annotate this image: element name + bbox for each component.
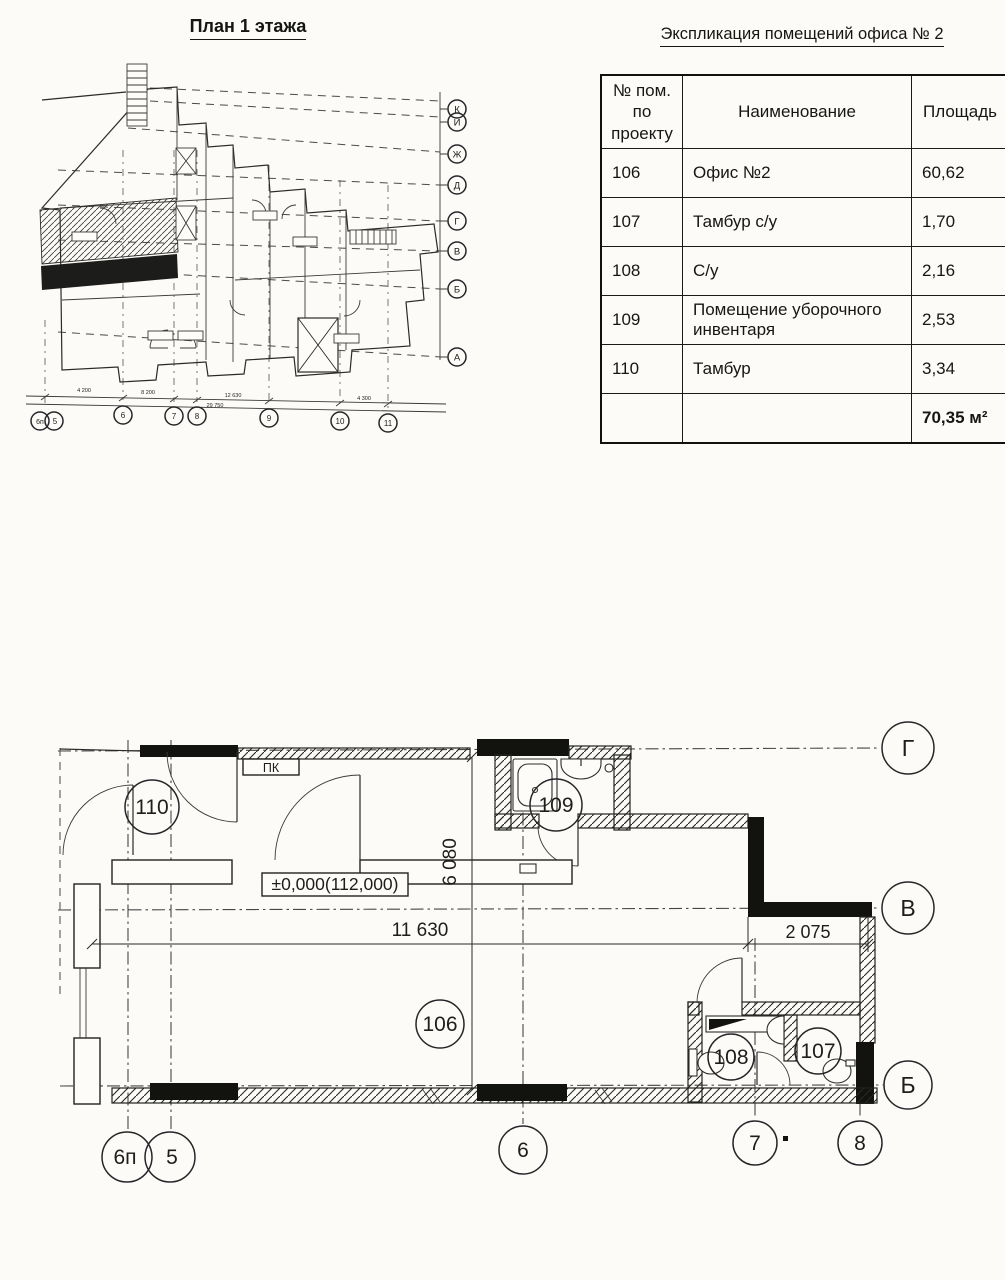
table-row: 110 Тамбур 3,34 bbox=[601, 344, 1005, 393]
room-area: 2,53 bbox=[912, 295, 1005, 344]
room-area: 3,34 bbox=[912, 344, 1005, 393]
total-area: 70,35 м² bbox=[912, 393, 1005, 443]
room-name: Помещение уборочного инвентаря bbox=[683, 295, 912, 344]
room-name: Офис №2 bbox=[683, 148, 912, 197]
rooms-107-108 bbox=[688, 958, 860, 1102]
walls-top bbox=[60, 739, 631, 759]
explication-table: № пом. по проекту Наименование Площадь 1… bbox=[600, 74, 1005, 444]
walls-bottom bbox=[112, 1083, 877, 1104]
axis-label: Г bbox=[454, 217, 459, 228]
room-label: 110 bbox=[135, 796, 168, 819]
empty-cell bbox=[601, 393, 683, 443]
dim-label: 12 630 bbox=[225, 393, 242, 399]
col-header-area: Площадь bbox=[912, 75, 1005, 148]
room-name: Тамбур с/у bbox=[683, 197, 912, 246]
room-area: 60,62 bbox=[912, 148, 1005, 197]
axis-label: В bbox=[454, 247, 460, 258]
svg-text:±0,000(112,000): ±0,000(112,000) bbox=[271, 874, 398, 894]
axis-letter-circles: Г В Б bbox=[882, 722, 934, 1109]
axis-label: Б bbox=[454, 285, 460, 296]
room-109 bbox=[495, 755, 748, 866]
axis-label: 5 bbox=[166, 1146, 178, 1169]
explication-title: Экспликация помещений офиса № 2 bbox=[607, 25, 997, 47]
axis-label: 10 bbox=[336, 417, 345, 426]
dim-label: 4 200 bbox=[77, 388, 91, 394]
table-row: 108 С/у 2,16 bbox=[601, 246, 1005, 295]
dim-width-right: 2 075 bbox=[785, 922, 830, 942]
room-label: 107 bbox=[800, 1040, 835, 1063]
elevation-mark: ±0,000(112,000) bbox=[262, 873, 408, 896]
left-wall-piers bbox=[74, 884, 100, 1104]
stair-run bbox=[350, 230, 396, 244]
door-swing-110-a bbox=[167, 752, 237, 822]
dim-label: 8 200 bbox=[141, 390, 155, 396]
axis-label: 11 bbox=[384, 419, 393, 428]
table-total-row: 70,35 м² bbox=[601, 393, 1005, 443]
axis-label: В bbox=[900, 895, 915, 921]
axis-label: 6 bbox=[517, 1139, 529, 1162]
small-floor-plan: К И Ж Д Г В Б А 4 200 8 200 12 630 bbox=[0, 55, 500, 445]
axis-label: 8 bbox=[195, 412, 200, 421]
large-floor-plan: ПК bbox=[0, 700, 1005, 1200]
room-label: 109 bbox=[538, 794, 573, 817]
col-header-number: № пом. по проекту bbox=[601, 75, 683, 148]
sink-109 bbox=[561, 759, 613, 779]
room-number: 108 bbox=[601, 246, 683, 295]
tick-mark bbox=[783, 1136, 788, 1141]
gate-opening bbox=[298, 318, 338, 372]
room-name: С/у bbox=[683, 246, 912, 295]
small-plan-title: План 1 этажа bbox=[148, 16, 348, 40]
axis-label: 9 bbox=[267, 414, 272, 423]
axis-label: 6п bbox=[113, 1146, 136, 1169]
axis-label: 8 bbox=[854, 1132, 866, 1155]
col-header-name: Наименование bbox=[683, 75, 912, 148]
axis-label: 7 bbox=[172, 412, 177, 421]
empty-cell bbox=[683, 393, 912, 443]
bottom-axis-row: 4 200 8 200 12 630 4 300 29 750 6п 5 6 7… bbox=[26, 388, 446, 432]
axis-label: Г bbox=[902, 735, 915, 761]
axis-label: 7 bbox=[749, 1132, 761, 1155]
wall-switch-mark bbox=[520, 864, 536, 873]
hatched-zone bbox=[40, 198, 178, 264]
room-label: 106 bbox=[422, 1013, 457, 1036]
stair-shaft bbox=[127, 64, 147, 126]
dim-height-main: 6 080 bbox=[440, 838, 461, 886]
room-label: 108 bbox=[713, 1046, 748, 1069]
axis-label: 6п bbox=[36, 419, 44, 426]
door-swing-110-b bbox=[275, 775, 360, 860]
axis-grid bbox=[58, 740, 884, 1131]
room-number: 107 bbox=[601, 197, 683, 246]
axis-label: Д bbox=[454, 181, 461, 192]
pk-box: ПК bbox=[243, 759, 299, 775]
dim-width-main: 11 630 bbox=[392, 920, 449, 941]
table-row: 107 Тамбур с/у 1,70 bbox=[601, 197, 1005, 246]
door-swing-110-c bbox=[63, 785, 133, 855]
dim-label: 4 300 bbox=[357, 396, 371, 402]
table-row: 106 Офис №2 60,62 bbox=[601, 148, 1005, 197]
room-number: 109 bbox=[601, 295, 683, 344]
room-area: 1,70 bbox=[912, 197, 1005, 246]
room-name: Тамбур bbox=[683, 344, 912, 393]
axis-label: 5 bbox=[53, 417, 58, 426]
door-swing-lobby bbox=[697, 958, 742, 1003]
pk-label: ПК bbox=[263, 761, 280, 775]
axis-label: Б bbox=[900, 1072, 915, 1098]
axis-label: А bbox=[454, 353, 461, 364]
room-number: 110 bbox=[601, 344, 683, 393]
axis-label: Ж bbox=[453, 150, 462, 161]
axis-label: И bbox=[454, 118, 461, 129]
dim-total-label: 29 750 bbox=[207, 403, 224, 409]
room-area: 2,16 bbox=[912, 246, 1005, 295]
elevator-shaft bbox=[176, 148, 196, 240]
axis-label: 6 bbox=[121, 411, 126, 420]
right-axis-column: К И Ж Д Г В Б А bbox=[440, 92, 466, 366]
axis-number-circles: 6п 5 6 7 8 bbox=[102, 1121, 882, 1182]
room-number: 106 bbox=[601, 148, 683, 197]
table-row: 109 Помещение уборочного инвентаря 2,53 bbox=[601, 295, 1005, 344]
